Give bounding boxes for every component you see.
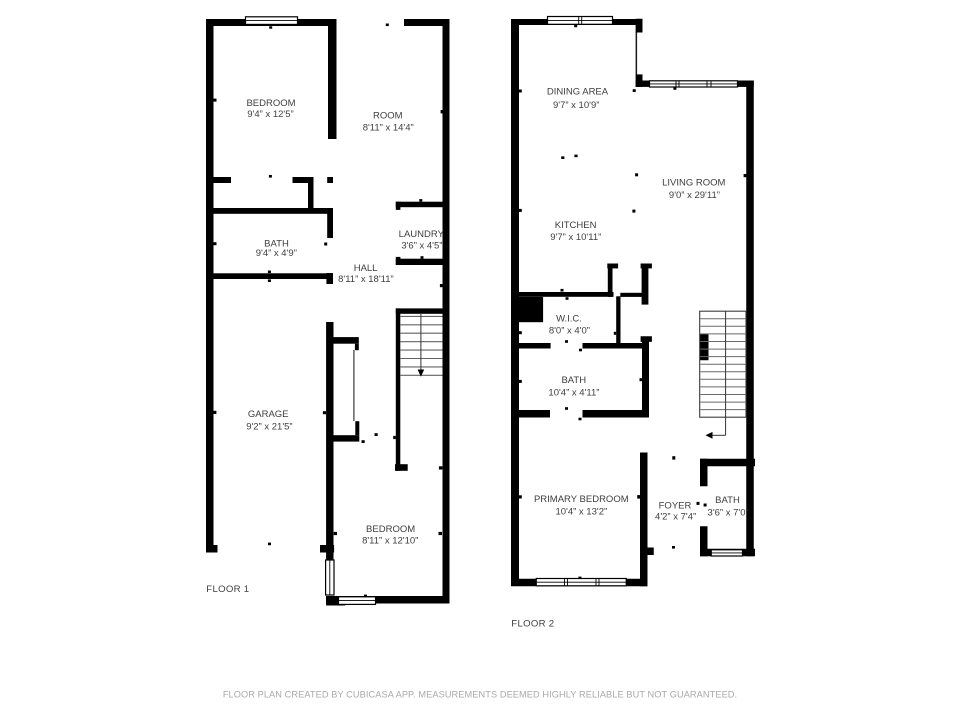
svg-text:GARAGE: GARAGE xyxy=(248,409,289,420)
svg-text:9'4” x 12'5”: 9'4” x 12'5” xyxy=(247,109,293,120)
svg-text:LIVING ROOM: LIVING ROOM xyxy=(662,178,725,189)
svg-text:3'6” x 4'5”: 3'6” x 4'5” xyxy=(401,241,442,252)
svg-text:10'4” x 4'11”: 10'4” x 4'11” xyxy=(548,388,599,399)
svg-text:4'2” x 7'4”: 4'2” x 7'4” xyxy=(655,511,696,522)
svg-text:9'2” x 21'5”: 9'2” x 21'5” xyxy=(246,422,292,433)
svg-text:BATH: BATH xyxy=(715,495,740,506)
svg-text:LAUNDRY: LAUNDRY xyxy=(399,229,445,240)
svg-text:10'4” x 13'2”: 10'4” x 13'2” xyxy=(555,506,607,517)
svg-text:8'11” x 12'10”: 8'11” x 12'10” xyxy=(362,535,418,546)
svg-text:DINING AREA: DINING AREA xyxy=(547,86,609,97)
svg-text:9'7” x 10'11”: 9'7” x 10'11” xyxy=(550,232,601,243)
svg-text:9'0” x 29'11”: 9'0” x 29'11” xyxy=(669,190,720,201)
svg-text:3'6” x 7'0”: 3'6” x 7'0” xyxy=(708,508,749,519)
svg-text:KITCHEN: KITCHEN xyxy=(555,220,597,231)
svg-text:8'0” x 4'0”: 8'0” x 4'0” xyxy=(549,326,590,337)
svg-text:8'11” x 18'11”: 8'11” x 18'11” xyxy=(338,274,394,285)
svg-text:FLOOR 2: FLOOR 2 xyxy=(511,619,554,630)
svg-text:8'11” x 14'4”: 8'11” x 14'4” xyxy=(363,122,414,133)
svg-text:BATH: BATH xyxy=(561,375,586,386)
svg-text:FLOOR PLAN CREATED BY CUBICASA: FLOOR PLAN CREATED BY CUBICASA APP. MEAS… xyxy=(223,689,737,699)
svg-text:9'7” x 10'9”: 9'7” x 10'9” xyxy=(553,100,599,111)
svg-text:W.I.C.: W.I.C. xyxy=(556,314,582,325)
svg-text:PRIMARY BEDROOM: PRIMARY BEDROOM xyxy=(534,494,629,505)
svg-text:BEDROOM: BEDROOM xyxy=(366,524,415,535)
svg-text:FOYER: FOYER xyxy=(659,501,692,512)
svg-text:ROOM: ROOM xyxy=(373,110,403,121)
svg-text:9'4” x 4'9”: 9'4” x 4'9” xyxy=(256,248,297,259)
svg-text:BEDROOM: BEDROOM xyxy=(246,98,295,109)
svg-text:FLOOR 1: FLOOR 1 xyxy=(206,584,249,595)
svg-text:HALL: HALL xyxy=(354,263,378,274)
